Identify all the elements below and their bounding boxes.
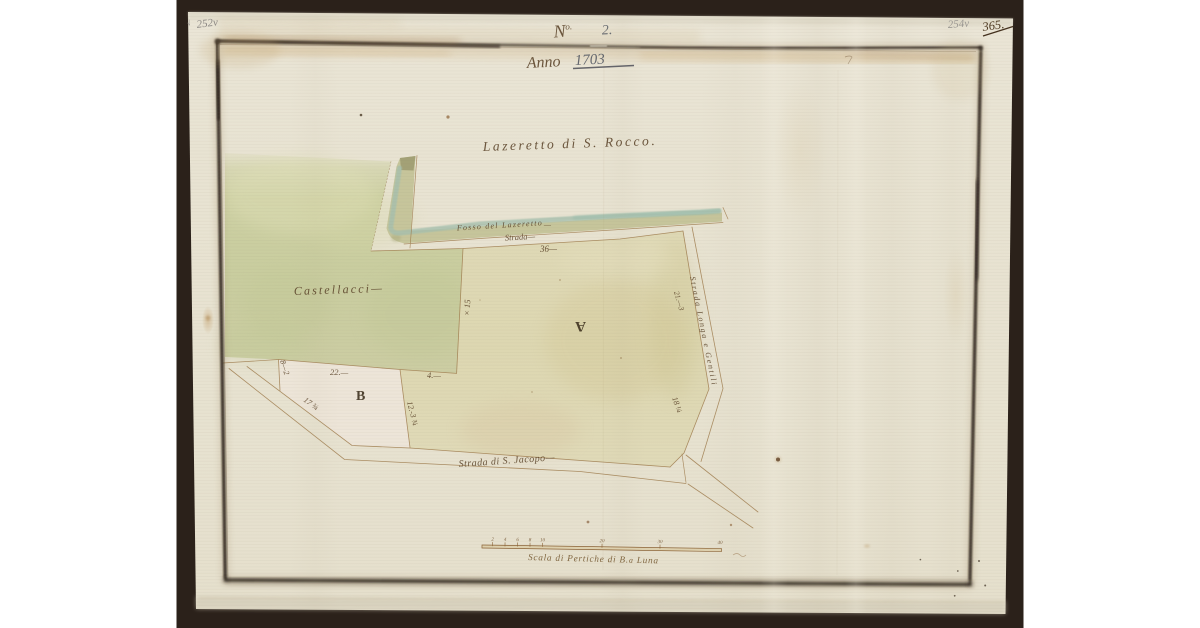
svg-text:10: 10: [540, 538, 546, 543]
svg-text:—: —: [543, 220, 553, 230]
svg-text:Anno: Anno: [525, 53, 561, 72]
svg-text:4.—: 4.—: [427, 370, 441, 380]
svg-text:30: 30: [658, 540, 664, 545]
svg-text:36—: 36—: [539, 244, 558, 254]
svg-text:A: A: [575, 318, 586, 334]
svg-text:× 15: × 15: [462, 299, 473, 316]
svg-text:1703: 1703: [574, 51, 605, 69]
svg-text:B: B: [356, 389, 365, 404]
svg-text:Strada—: Strada—: [505, 231, 536, 243]
svg-text:254v: 254v: [947, 18, 969, 31]
svg-text:2.: 2.: [601, 23, 612, 39]
svg-text:20: 20: [600, 539, 606, 544]
svg-text:40: 40: [718, 541, 724, 546]
svg-text:22.—: 22.—: [330, 367, 349, 377]
